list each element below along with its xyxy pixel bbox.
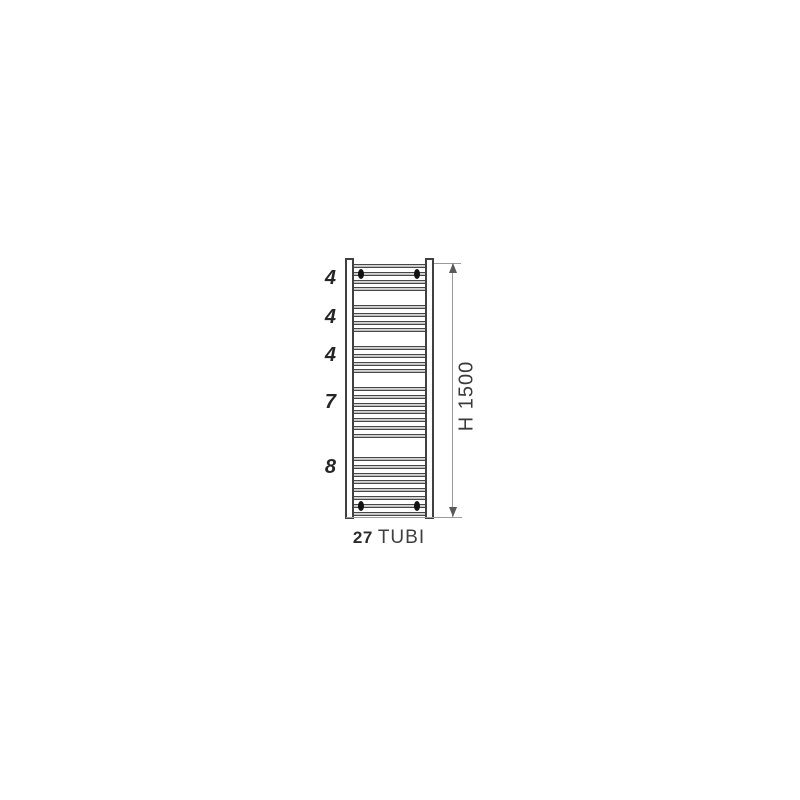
radiator-technical-diagram: 44478 H 1500 27TUBI [0,0,800,800]
radiator-tube [354,362,425,366]
radiator-tube [354,395,425,399]
radiator-tube [354,321,425,325]
tube-group-count-label: 4 [298,265,336,291]
radiator-tube [354,305,425,309]
tube-group-count-label: 4 [298,342,336,368]
radiator-right-rail [425,258,434,519]
height-dimension-label: H 1500 [456,361,479,432]
radiator-tube [354,369,425,373]
radiator-tube [354,403,425,407]
tube-group-count-label: 4 [298,304,336,330]
radiator-tube [354,488,425,492]
radiator-tube [354,418,425,422]
radiator-tube [354,434,425,438]
wall-bracket-dot [358,269,364,279]
radiator-tube [354,287,425,291]
radiator-tube [354,465,425,469]
radiator-tube [354,480,425,484]
wall-bracket-dot [358,501,364,511]
radiator-tube [354,264,425,268]
radiator-tube [354,346,425,350]
wall-bracket-dot [414,269,420,279]
tube-group-count-label: 7 [298,389,336,415]
tube-count-value: 27 [353,528,373,547]
radiator-tube [354,473,425,477]
total-tubes-label: 27TUBI [289,527,489,549]
radiator-tube [354,426,425,430]
radiator-tube [354,354,425,358]
tube-count-unit: TUBI [378,527,425,548]
radiator-tube [354,410,425,414]
radiator-tube [354,496,425,500]
radiator-tube [354,328,425,332]
dimension-arrow-down-icon [449,507,457,517]
dimension-arrow-up-icon [449,263,457,273]
tube-group-count-label: 8 [298,454,336,480]
radiator-tube [354,280,425,284]
radiator-tube [354,457,425,461]
dimension-extension-line-bottom [346,517,462,518]
height-dimension-line [452,263,453,517]
radiator-tube [354,313,425,317]
radiator-tube [354,512,425,516]
radiator-left-rail [345,258,354,519]
wall-bracket-dot [414,501,420,511]
radiator-tube [354,387,425,391]
